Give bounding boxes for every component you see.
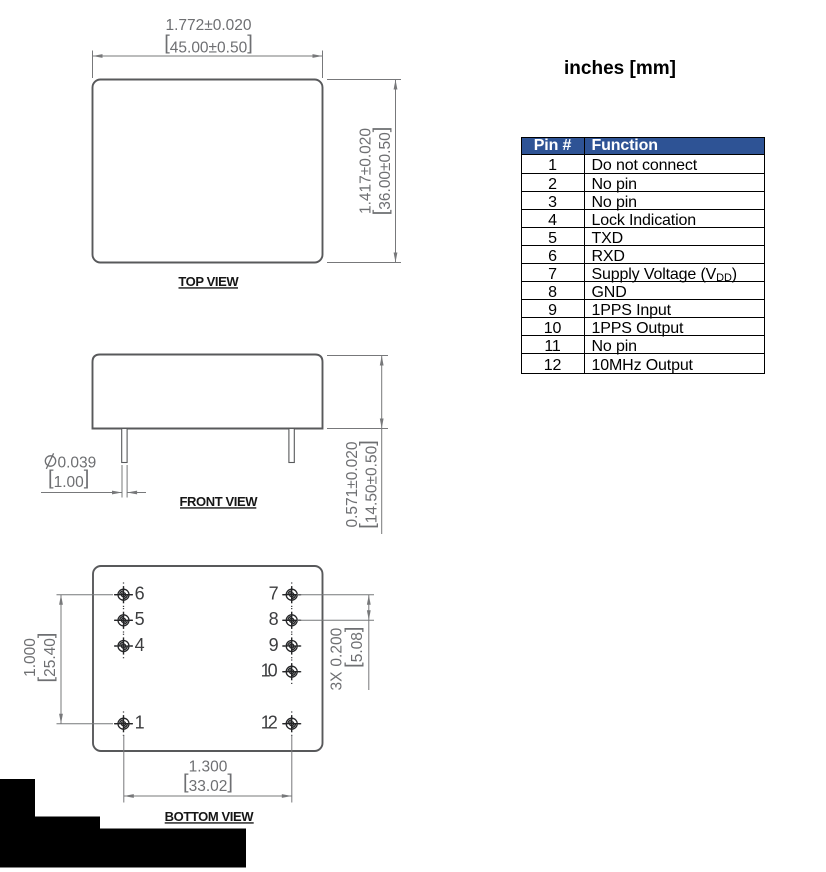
svg-text:0.200: 0.200 (329, 627, 346, 666)
svg-text:[5.08]: [5.08] (342, 627, 366, 668)
svg-text:5: 5 (135, 609, 145, 629)
svg-text:[45.00±0.50]: [45.00±0.50] (164, 33, 253, 57)
svg-text:1.417±0.020: 1.417±0.020 (358, 128, 375, 214)
svg-text:4: 4 (135, 635, 145, 655)
svg-text:3X: 3X (329, 671, 346, 691)
svg-text:TOP VIEW: TOP VIEW (178, 274, 239, 289)
svg-text:1.772±0.020: 1.772±0.020 (165, 17, 251, 34)
svg-text:9: 9 (269, 635, 279, 655)
svg-text:1: 1 (135, 713, 145, 733)
svg-text:6: 6 (135, 584, 145, 604)
svg-text:0.571±0.020: 0.571±0.020 (344, 441, 361, 527)
svg-text:inches [mm]: inches [mm] (564, 58, 676, 79)
svg-text:8: 8 (269, 609, 279, 629)
svg-text:0.039: 0.039 (58, 455, 97, 472)
svg-text:10: 10 (261, 661, 278, 681)
svg-text:1.300: 1.300 (189, 759, 228, 776)
svg-text:FRONT VIEW: FRONT VIEW (179, 494, 258, 509)
svg-text:7: 7 (269, 584, 279, 604)
svg-text:1.000: 1.000 (22, 638, 39, 677)
svg-text:12: 12 (261, 713, 278, 733)
svg-text:BOTTOM VIEW: BOTTOM VIEW (165, 809, 255, 824)
